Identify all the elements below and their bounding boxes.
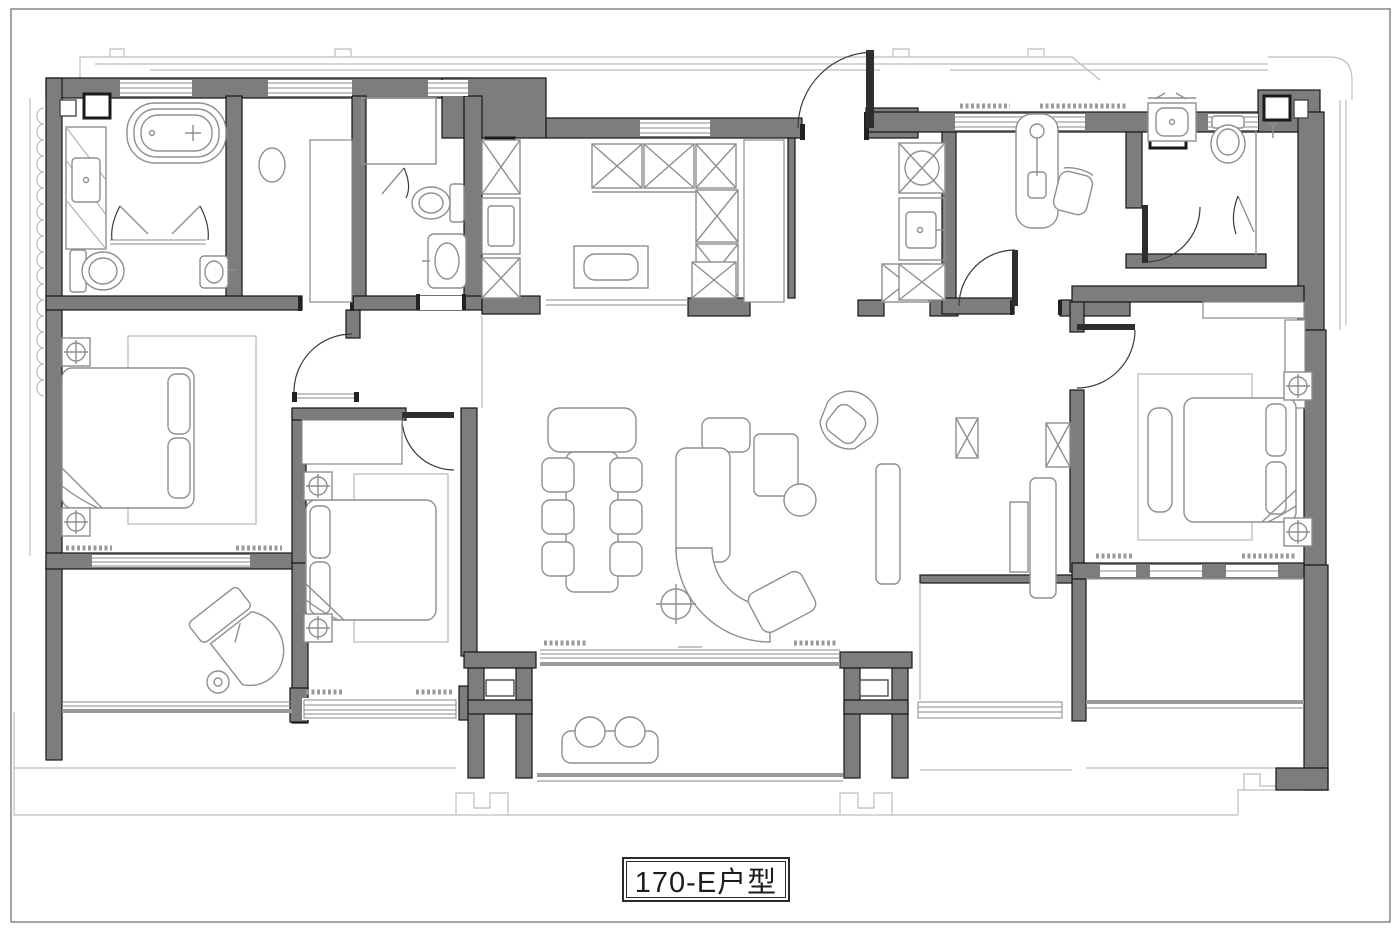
slider-den-south bbox=[62, 702, 292, 711]
wall-bed3-west bbox=[1070, 390, 1084, 572]
armchair-icon bbox=[809, 380, 889, 460]
hall-column-x bbox=[956, 418, 978, 458]
balcony-column-right bbox=[840, 652, 912, 778]
sink-icon bbox=[1148, 93, 1196, 141]
nightstand-column-icon bbox=[304, 472, 332, 500]
bathtub-icon bbox=[127, 103, 226, 163]
window-north-3 bbox=[428, 80, 468, 96]
wall-hall-chunk-b bbox=[858, 300, 884, 316]
balconies bbox=[537, 717, 843, 781]
wall-kitchen-chunk bbox=[688, 298, 750, 316]
kitchen bbox=[482, 140, 784, 305]
mirror-icon bbox=[259, 148, 285, 182]
wall-west-lower bbox=[46, 564, 62, 760]
double-bed-icon bbox=[1184, 398, 1296, 522]
shaft-1 bbox=[84, 94, 110, 118]
dining-chair-icon bbox=[542, 500, 574, 534]
bedroom2-door bbox=[402, 412, 454, 470]
nightstand-column-icon bbox=[1284, 372, 1312, 400]
left-coil-trim bbox=[37, 108, 44, 396]
slider-living-south bbox=[540, 647, 840, 664]
master-bathroom bbox=[66, 103, 236, 292]
shower-area bbox=[362, 98, 436, 164]
pantry-shelves-icon bbox=[744, 140, 784, 302]
wall-east-lower bbox=[1304, 565, 1328, 790]
wall-closet-bath2 bbox=[352, 96, 366, 298]
den bbox=[187, 582, 298, 698]
wall-roomb-west bbox=[1072, 579, 1086, 721]
master-bedroom bbox=[62, 336, 282, 548]
wall-west bbox=[46, 78, 62, 570]
sideboard-icon bbox=[548, 408, 636, 452]
closet-shelves-icon bbox=[310, 140, 352, 302]
nightstand-column-icon bbox=[304, 614, 332, 642]
bed3-column-x bbox=[1046, 423, 1070, 467]
laundry-utility bbox=[899, 143, 945, 300]
bedroom3-door bbox=[1077, 324, 1135, 388]
kitchen-counter-line bbox=[546, 300, 688, 305]
utility-x-box bbox=[899, 264, 945, 300]
window-rooma-balcony bbox=[916, 700, 1064, 720]
kitchen-chunk-x bbox=[692, 262, 736, 298]
wall-study-bath3 bbox=[1126, 132, 1142, 208]
stool-icon bbox=[615, 717, 645, 747]
wall-bed3-north bbox=[1072, 286, 1304, 302]
side-table-icon bbox=[784, 484, 816, 516]
radiator-icon bbox=[1203, 302, 1304, 318]
dining-chair-icon bbox=[542, 458, 574, 492]
desk-icon bbox=[187, 582, 298, 698]
master-bedroom-door bbox=[292, 334, 359, 402]
upper-cabinets-x bbox=[592, 144, 738, 192]
dining-chair-icon bbox=[610, 542, 642, 576]
utility-sink-icon bbox=[899, 198, 945, 260]
nightstand-column-icon bbox=[1284, 518, 1312, 546]
unit-type-label: 170-E户型 bbox=[622, 857, 790, 902]
wall-topband-south-a bbox=[46, 296, 302, 310]
bed-bench-icon bbox=[1148, 408, 1172, 512]
window-master-south bbox=[92, 555, 250, 567]
living-dining-room bbox=[542, 380, 900, 643]
toilet-icon bbox=[412, 184, 464, 222]
wall-bed2-east bbox=[461, 408, 477, 656]
toilet-icon bbox=[1211, 116, 1245, 163]
stool-icon bbox=[575, 717, 605, 747]
floor-plan-page: 170-E户型 bbox=[0, 0, 1400, 933]
shower-door-icon bbox=[382, 168, 404, 194]
dining-set bbox=[542, 408, 642, 592]
desk-icon bbox=[1016, 114, 1058, 228]
shaft-small bbox=[60, 100, 76, 116]
stool-icon bbox=[207, 671, 229, 693]
entry-door bbox=[798, 50, 874, 128]
wall-se-chunk bbox=[1276, 768, 1328, 790]
floor-plan-drawing bbox=[0, 0, 1400, 933]
wall-pantry-east bbox=[788, 138, 795, 298]
nightstand-column-icon bbox=[62, 338, 90, 366]
slider-roomb-south bbox=[1086, 702, 1304, 708]
dining-chair-icon bbox=[610, 458, 642, 492]
wall-bath2-hall bbox=[464, 96, 482, 298]
wall-study-south-a bbox=[942, 298, 1014, 314]
wall-bed2-north bbox=[292, 408, 406, 420]
shaft-5 bbox=[1294, 100, 1308, 118]
window-bed3-south bbox=[1100, 565, 1278, 577]
bedroom-3 bbox=[1010, 302, 1312, 598]
shaft-4 bbox=[1264, 96, 1290, 120]
hall-cabinet-column bbox=[482, 140, 520, 298]
dining-chair-icon bbox=[610, 500, 642, 534]
window-bed2-balcony bbox=[302, 698, 458, 720]
window-north-1 bbox=[120, 80, 192, 96]
unit-type-text: 170-E户型 bbox=[635, 859, 777, 901]
vanity-sink-icon bbox=[66, 127, 106, 249]
dining-chair-icon bbox=[542, 542, 574, 576]
balcony-bench-icon bbox=[562, 717, 658, 763]
wardrobe-icon bbox=[302, 420, 402, 464]
shower-door-icon bbox=[1238, 196, 1254, 232]
washer-icon bbox=[899, 143, 945, 193]
bedroom-2 bbox=[302, 420, 454, 692]
kitchen-island-icon bbox=[574, 246, 648, 288]
sink-icon bbox=[422, 234, 466, 288]
balcony-column-left bbox=[464, 652, 536, 778]
toilet-icon bbox=[70, 250, 124, 292]
nightstand-column-icon bbox=[62, 508, 90, 536]
window-north-2 bbox=[268, 80, 352, 96]
wall-hall-chunk bbox=[482, 296, 540, 314]
walk-in-closet bbox=[259, 140, 352, 302]
window-kitchen bbox=[640, 120, 710, 136]
shower-door-icon bbox=[110, 206, 208, 244]
tv-console-icon bbox=[876, 464, 900, 584]
